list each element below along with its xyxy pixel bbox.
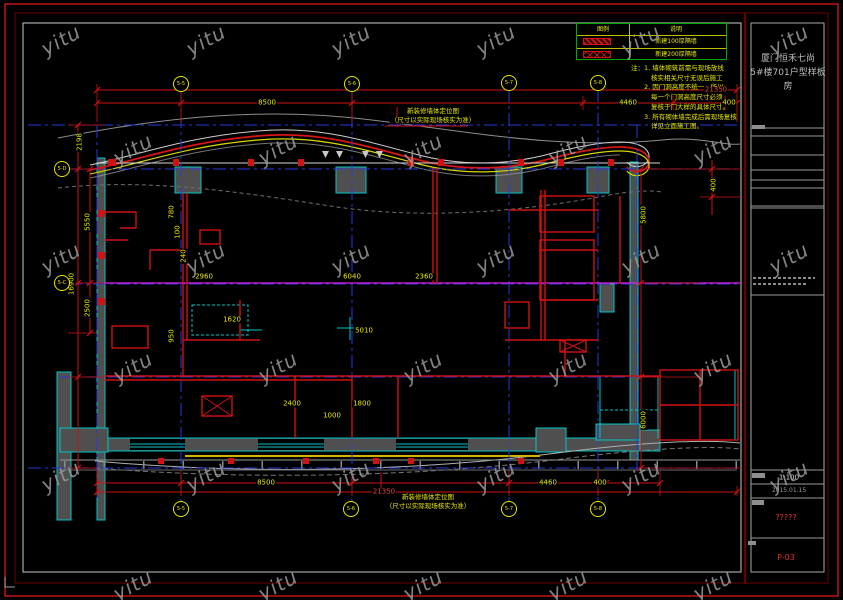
note-line: 注：1. 墙体砌筑前需与现场放线 (631, 64, 747, 74)
dim-label: 400 (711, 177, 718, 192)
dim-overall-bottom: 21350 (372, 489, 396, 496)
sheet-name-glyphs: ????? (775, 514, 796, 522)
dim-label: 400 (592, 480, 607, 487)
note-line: 2. 因门洞高度不统一，所以 (631, 83, 747, 93)
note-line: 3. 所有砌体墙完成后需现场复核 (631, 113, 747, 123)
dim-label: 2198 (77, 132, 84, 152)
project-title-line2: 5#楼701户型样板房 (750, 66, 826, 94)
dim-label: 4460 (538, 480, 558, 487)
dim-label: 6040 (342, 274, 362, 281)
dim-label: 950 (169, 328, 176, 343)
dim-label: 8500 (256, 480, 276, 487)
title-block-fine-print (753, 283, 808, 285)
dim-label: 780 (169, 204, 176, 219)
project-title: 厦门恒禾七尚 5#楼701户型样板房 (750, 52, 826, 94)
caption-bottom: 新装修墙体定位图 (401, 494, 455, 501)
cad-drawing-sheet: 图例 说明 新建100厚隔墙 新建200厚隔墙 注：1. 墙体砌筑前需与现场放线… (0, 0, 843, 600)
dim-label: 1620 (222, 317, 242, 324)
legend-header-line (577, 35, 726, 36)
project-title-line1: 厦门恒禾七尚 (750, 52, 826, 66)
title-block-field-label (752, 125, 765, 129)
grid-bubble-left: 5-C (54, 275, 70, 291)
legend-swatch-hatch (583, 38, 611, 45)
legend-divider (629, 24, 630, 59)
dim-label: 5800 (641, 205, 648, 225)
legend-swatch-cross (583, 51, 611, 58)
dim-label: 2360 (414, 274, 434, 281)
caption-top: （尺寸以实际现场核实为准） (390, 117, 477, 124)
legend-table: 图例 说明 新建100厚隔墙 新建200厚隔墙 (576, 23, 727, 60)
title-block-fine-print (753, 277, 815, 279)
dim-label: 2960 (194, 274, 214, 281)
cyan-partitions (192, 305, 735, 440)
legend-row-line (577, 48, 726, 49)
scale-field-label (752, 473, 765, 478)
dim-label: 8500 (257, 100, 277, 107)
legend-row-label: 新建100厚隔墙 (655, 39, 696, 45)
legend-row-label: 新建200厚隔墙 (655, 52, 696, 58)
grid-bubble-left: 5-D (54, 161, 70, 177)
legend-col-symbol: 图例 (597, 27, 609, 33)
date-value: 2015.01.15 (772, 488, 806, 494)
grid-bubble-bottom: 5-7 (501, 501, 517, 517)
grid-bubble-top: 5-5 (173, 76, 189, 92)
grid-bubble-bottom: 5-8 (590, 501, 606, 517)
sheet-no-field-label (748, 541, 756, 545)
caption-bottom: （尺寸以实际现场核实为准） (385, 503, 472, 510)
dim-label: 5550 (85, 212, 92, 232)
dim-overall-top: 21350 (704, 87, 728, 94)
note-line: 详见立面施工图。 (631, 122, 747, 132)
sheet-name-field-label (752, 500, 764, 505)
dim-label: 4460 (618, 100, 638, 107)
legend-col-desc: 说明 (670, 27, 682, 33)
dim-label: 2500 (85, 298, 92, 318)
grid-bubble-bottom: 5-5 (173, 501, 189, 517)
grid-bubble-bottom: 5-6 (343, 501, 359, 517)
caption-top: 新装修墙体定位图 (406, 108, 460, 115)
dim-label: 1800 (352, 401, 372, 408)
sheet-number: P-03 (777, 554, 795, 562)
dim-label: 100 (175, 224, 182, 239)
dim-label: 5010 (354, 328, 374, 335)
dim-label: 6000 (641, 410, 648, 430)
dim-label: 400 (721, 100, 736, 107)
scale-value: 1:100 (779, 475, 799, 482)
note-line: 核实相关尺寸无误后施工 (631, 74, 747, 84)
grid-bubble-top: 5-6 (344, 76, 360, 92)
grid-bubble-top: 5-7 (501, 75, 517, 91)
grid-bubble-top: 5-8 (590, 75, 606, 91)
dim-label: 1000 (322, 413, 342, 420)
dim-label: 2400 (282, 401, 302, 408)
dim-label: 240 (181, 248, 188, 263)
